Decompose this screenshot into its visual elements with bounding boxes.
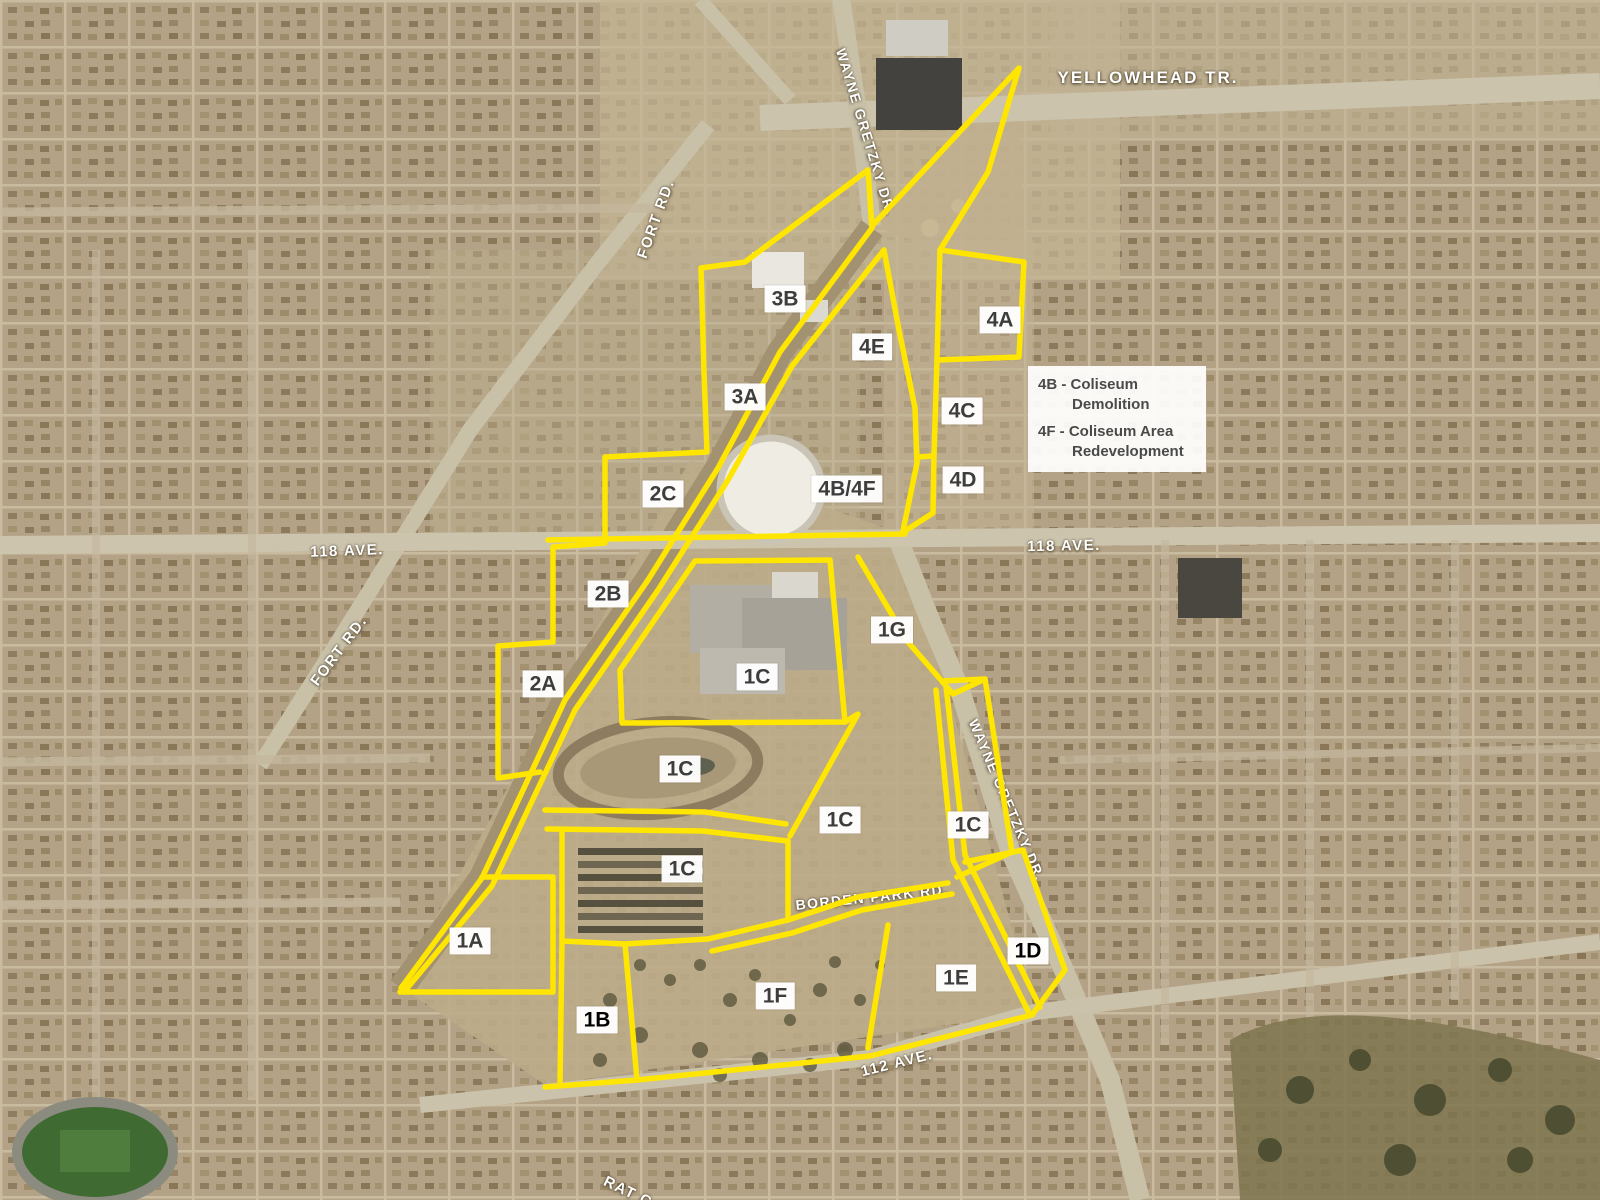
zone-label-1C-barns: 1C bbox=[662, 855, 703, 882]
zone-label-4C: 4C bbox=[942, 397, 983, 424]
zone-label-1B: 1B bbox=[577, 1006, 618, 1033]
legend-line-4f-cont: Redevelopment bbox=[1038, 442, 1200, 462]
zone-label-3B: 3B bbox=[765, 285, 806, 312]
zone-label-4D: 4D bbox=[943, 466, 984, 493]
parcel-boundary-layer bbox=[0, 0, 1600, 1200]
zone-label-2B: 2B bbox=[588, 580, 629, 607]
aerial-map: YELLOWHEAD TR. WAYNE GRETZKY DR. WAYNE G… bbox=[0, 0, 1600, 1200]
legend: 4B - Coliseum Demolition 4F - Coliseum A… bbox=[1028, 366, 1206, 472]
zone-label-1G: 1G bbox=[871, 616, 913, 643]
zone-label-1C-mall: 1C bbox=[737, 663, 778, 690]
zone-label-2C: 2C bbox=[643, 480, 684, 507]
zone-label-4A: 4A bbox=[980, 306, 1021, 333]
zone-label-1E: 1E bbox=[936, 964, 976, 991]
zone-label-3A: 3A bbox=[725, 383, 766, 410]
legend-line-4b: 4B - Coliseum bbox=[1038, 375, 1200, 395]
legend-line-4b-cont: Demolition bbox=[1038, 395, 1200, 415]
zone-label-1C-racetrack: 1C bbox=[660, 755, 701, 782]
zone-label-4E: 4E bbox=[852, 333, 892, 360]
zone-label-1C-center: 1C bbox=[820, 806, 861, 833]
zone-label-1F: 1F bbox=[756, 982, 795, 1009]
zone-label-4B4F: 4B/4F bbox=[811, 475, 882, 502]
zone-label-2A: 2A bbox=[523, 670, 564, 697]
parcel-boundaries bbox=[400, 68, 1065, 1087]
zone-label-1C-east: 1C bbox=[948, 811, 989, 838]
zone-label-1A: 1A bbox=[450, 927, 491, 954]
zone-label-1D: 1D bbox=[1008, 937, 1049, 964]
legend-line-4f: 4F - Coliseum Area bbox=[1038, 422, 1200, 442]
